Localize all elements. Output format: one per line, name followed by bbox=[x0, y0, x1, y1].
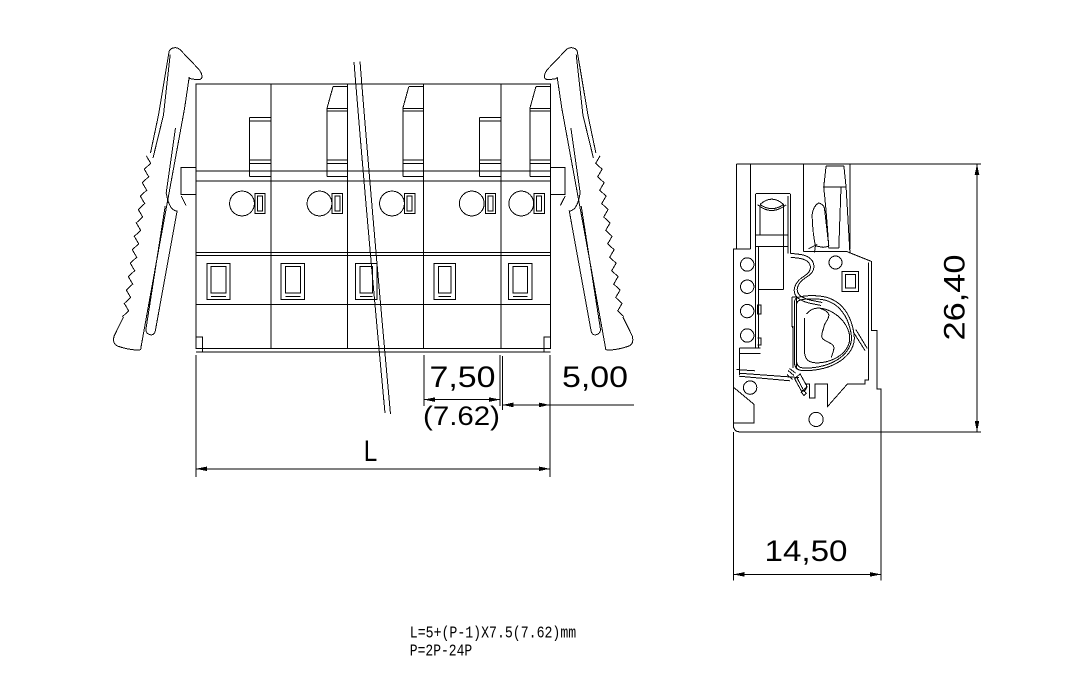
svg-text:5,00: 5,00 bbox=[562, 361, 628, 394]
svg-text:P=2P-24P: P=2P-24P bbox=[410, 642, 472, 661]
svg-text:7,50: 7,50 bbox=[430, 361, 496, 394]
svg-text:26,40: 26,40 bbox=[939, 255, 972, 341]
svg-text:14,50: 14,50 bbox=[765, 535, 848, 568]
svg-text:(7.62): (7.62) bbox=[423, 401, 500, 431]
svg-text:L: L bbox=[364, 435, 378, 468]
svg-text:L=5+(P-1)X7.5(7.62)mm: L=5+(P-1)X7.5(7.62)mm bbox=[410, 624, 576, 643]
